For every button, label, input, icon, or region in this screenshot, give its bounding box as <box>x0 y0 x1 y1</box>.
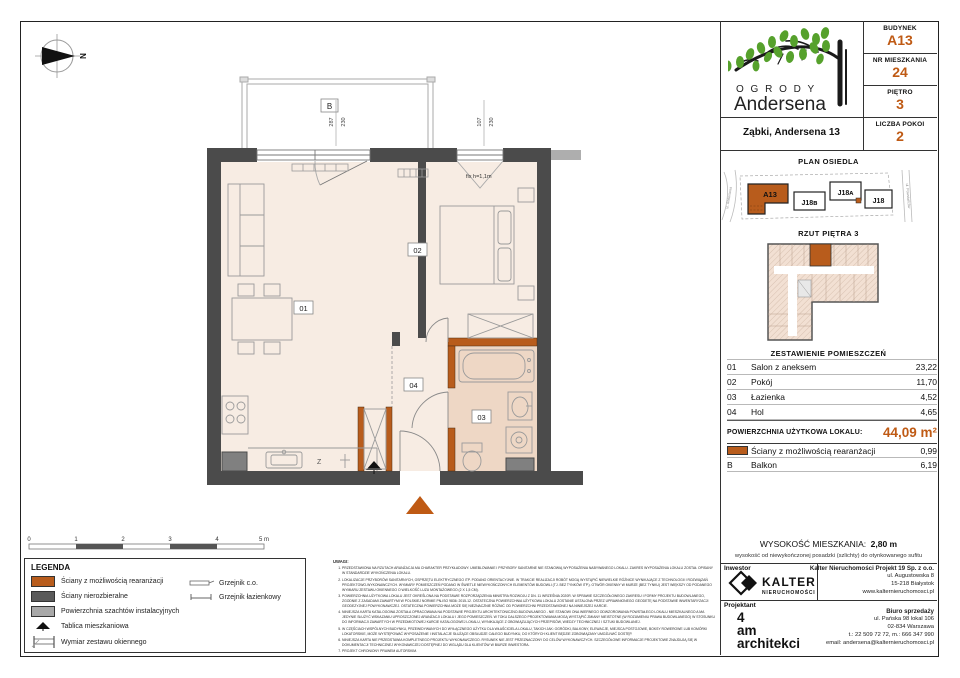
note-item: POWIERZCHNIA UŻYTKOWA LOKALU JEST OKREŚL… <box>342 594 717 609</box>
note-item: NINIEJSZA KARTA NIE PRZEDSTAWIA KOMPLETN… <box>342 638 717 648</box>
floor-value: 3 <box>863 96 937 112</box>
table-row-balcony: B Balkon 6,19 <box>727 458 937 472</box>
svg-text:1: 1 <box>74 537 78 543</box>
legend-title: LEGENDA <box>31 563 299 572</box>
svg-text:2: 2 <box>121 537 125 543</box>
svg-text:287: 287 <box>329 117 335 126</box>
note-item: PROJEKT CHRONIONY PRAWEM AUTORSKIM. <box>342 649 717 654</box>
shaft-swatch <box>31 606 55 617</box>
svg-text:107: 107 <box>477 117 483 126</box>
height-note: wysokość od niewykończonej posadzki (szl… <box>720 553 937 559</box>
svg-text:4: 4 <box>215 537 219 543</box>
info-rooms: LICZBA POKOI 2 <box>863 117 937 150</box>
radiator-bathroom-icon <box>189 592 215 602</box>
svg-text:3: 3 <box>168 537 172 543</box>
building-a13-label: A13 <box>763 190 777 199</box>
company-address: Kalter Nieruchomości Projekt 19 Sp. z o.… <box>757 565 934 597</box>
building-a13 <box>748 184 788 214</box>
rearrangeable-walls-swatch <box>31 576 55 587</box>
height-label: WYSOKOŚĆ MIESZKANIA: <box>760 539 866 549</box>
sales-office: Biuro sprzedaży ul. Pańska 98 lokal 106 … <box>790 608 934 648</box>
sales-office-title: Biuro sprzedaży <box>790 608 934 616</box>
rearrangeable-walls-swatch <box>727 446 748 455</box>
dishwasher-label: Z <box>317 459 322 466</box>
entrance-marker <box>406 496 434 514</box>
legend-item: Grzejnik c.o. <box>189 578 299 588</box>
solid-walls-swatch <box>31 591 55 602</box>
logo-underline <box>720 117 863 118</box>
titleblock-bottom <box>720 150 937 151</box>
logo-line2: Andersena <box>734 94 826 115</box>
building-j18-label: J18 <box>873 198 885 205</box>
project-address: Ząbki, Andersena 13 <box>720 127 863 138</box>
floor-overview-map <box>760 240 885 344</box>
window-dimension-icon <box>31 635 57 649</box>
legend-item: Grzejnik łazienkowy <box>189 592 299 602</box>
table-row: 02 Pokój 11,70 <box>727 375 937 390</box>
room-label-02: 02 <box>413 246 421 255</box>
north-label: N <box>78 53 87 59</box>
floor-plan: N B <box>0 0 720 540</box>
legend-item: Ściany nierozbieralne <box>31 591 189 602</box>
svg-text:230: 230 <box>489 117 495 126</box>
estate-plan-map: ul. Andersena ul. Powstańców A13 J18ʙ J1… <box>720 168 937 224</box>
estate-plan-title: PLAN OSIEDLA <box>720 157 937 166</box>
company-name: Kalter Nieruchomości Projekt 19 Sp. z o.… <box>757 565 934 573</box>
apartment-height: WYSOKOŚĆ MIESZKANIA: 2,80 m wysokość od … <box>720 534 937 559</box>
footer-top-line <box>720 563 937 564</box>
neighbor-wall-stub <box>551 150 581 160</box>
note-item: PRZEDSTAWIONA NA RZUTACH ARANŻACJA MA CH… <box>342 566 717 576</box>
radiator-co-icon <box>189 578 215 588</box>
total-area-row: POWIERZCHNIA UŻYTKOWA LOKALU: 44,09 m² <box>727 420 937 444</box>
legend-item: Tablica mieszkaniowa <box>31 621 189 631</box>
logo-leaves <box>728 26 830 71</box>
svg-text:5 m: 5 m <box>259 537 269 543</box>
rooms-value: 2 <box>863 128 937 144</box>
legend-item: Powierzchnia szachtów instalacyjnych <box>31 606 189 617</box>
table-row-walls: Ściany z możliwością rearanżacji 0,99 <box>727 444 937 458</box>
building-value: A13 <box>863 32 937 48</box>
shaft-bathroom <box>506 458 534 471</box>
legend-item: Wymiar zestawu okiennego <box>31 635 189 649</box>
footer-mid-line <box>720 600 937 601</box>
building-j18a-label: J18ᴀ <box>838 190 855 197</box>
room-label-01: 01 <box>299 304 307 313</box>
legend: LEGENDA Ściany z możliwością rearanżacji… <box>24 558 306 653</box>
floor-overview-title: RZUT PIĘTRA 3 <box>720 229 937 238</box>
total-area-label: POWIERZCHNIA UŻYTKOWA LOKALU: <box>727 429 863 436</box>
rooms-table-title: ZESTAWIENIE POMIESZCZEŃ <box>720 349 937 358</box>
table-row: 04 Hol 4,65 <box>727 405 937 420</box>
apartment-board-icon <box>31 621 55 631</box>
note-item: NINIEJSZA KARTA KATALOGOWA ZOSTAŁA OPRAC… <box>342 610 717 625</box>
svg-text:230: 230 <box>341 117 347 126</box>
note-item: LOKALIZACJE PRZYBORÓW SANITARNYCH, OSPRZ… <box>342 578 717 593</box>
street-right-label: ul. Powstańców <box>905 183 911 209</box>
apartment-no-value: 24 <box>863 64 937 80</box>
svg-text:0: 0 <box>27 537 31 543</box>
notes-title: UWAGI: <box>333 559 717 565</box>
designer-label: Projektant <box>724 602 756 609</box>
rooms-table: 01 Salon z aneksem 23,22 02 Pokój 11,70 … <box>727 359 937 472</box>
table-row: 03 Łazienka 4,52 <box>727 390 937 405</box>
bathroom-floor <box>448 346 537 471</box>
balcony-label-box: B <box>321 99 338 112</box>
notes-list: PRZEDSTAWIONA NA RZUTACH ARANŻACJA MA CH… <box>333 566 717 654</box>
shaft-kitchen <box>222 452 247 471</box>
highlighted-unit <box>810 244 831 266</box>
total-area-value: 44,09 m² <box>883 425 937 440</box>
room-label-04: 04 <box>409 381 417 390</box>
fix-window-note: fix h=1,1m <box>466 174 492 180</box>
note-item: W CZĘŚCIACH WSPÓLNYCH BUDYNKU, PRZEWIDYW… <box>342 627 717 637</box>
scale-bar: 0 1 2 3 4 5 m <box>24 534 274 556</box>
street-left-label: ul. Andersena <box>725 187 733 209</box>
info-apartment-no: NR MIESZKANIA 24 <box>863 53 937 85</box>
balcony-label: B <box>327 102 332 111</box>
notes: UWAGI: PRZEDSTAWIONA NA RZUTACH ARANŻACJ… <box>333 559 717 655</box>
dimension-window-2: 107 230 <box>477 100 495 146</box>
legend-item: Ściany z możliwością rearanżacji <box>31 576 189 587</box>
brand-logo: O G R O D Y Andersena <box>728 24 858 116</box>
table-row: 01 Salon z aneksem 23,22 <box>727 359 937 375</box>
info-building: BUDYNEK A13 <box>863 21 937 53</box>
balcony <box>240 77 435 150</box>
building-j18b-label: J18ʙ <box>802 200 819 207</box>
compass-icon: N <box>35 34 87 78</box>
room-label-03: 03 <box>477 413 485 422</box>
info-floor: PIĘTRO 3 <box>863 85 937 117</box>
height-value: 2,80 m <box>871 539 897 549</box>
